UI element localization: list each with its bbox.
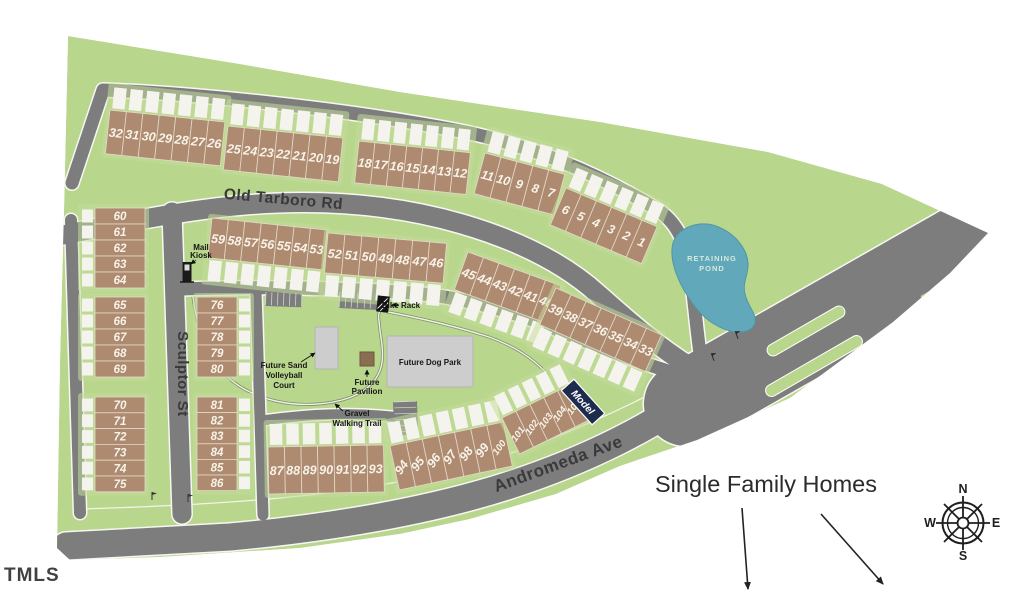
- pavilion[interactable]: [360, 352, 374, 366]
- driveway: [82, 226, 93, 239]
- driveway: [289, 269, 304, 291]
- lot-number: 61: [114, 227, 127, 239]
- volleyball-label-line1: Future Sand: [261, 361, 308, 370]
- driveway: [82, 210, 93, 223]
- lot-number: 75: [114, 479, 127, 491]
- lot-number: 27: [189, 134, 206, 150]
- lot-number: 93: [369, 462, 383, 476]
- volleyball-label-line2: Volleyball: [266, 371, 303, 380]
- driveway: [393, 122, 407, 144]
- driveway: [224, 262, 239, 284]
- lot-number: 82: [211, 416, 224, 428]
- lot-block-col-60-64: 6061626364: [78, 204, 149, 292]
- pavilion-label-line1: Future: [355, 378, 380, 387]
- lot-number: 49: [377, 251, 393, 266]
- lot-number: 66: [114, 316, 127, 328]
- driveway: [286, 423, 299, 444]
- lot-number: 89: [303, 463, 317, 477]
- volleyball-label-line3: Court: [273, 381, 295, 390]
- driveway: [240, 263, 255, 285]
- driveway: [409, 123, 423, 145]
- lot-number: 63: [114, 259, 127, 271]
- driveway: [257, 265, 272, 287]
- single-family-arrow-left: [742, 508, 748, 589]
- volleyball-court[interactable]: [315, 327, 338, 369]
- street-label-sculptor-st: Sculptor St: [174, 331, 191, 417]
- lot-number: 73: [114, 448, 127, 460]
- entry-monument: [921, 292, 937, 312]
- lot-number: 71: [114, 416, 127, 428]
- lot-number: 79: [211, 348, 224, 360]
- lot-number: 84: [211, 447, 224, 459]
- driveway: [82, 414, 93, 427]
- lot-number: 90: [319, 463, 333, 477]
- lot-number: 31: [125, 127, 140, 142]
- compass-north-label: N: [958, 482, 967, 496]
- driveway: [279, 109, 294, 131]
- driveway: [296, 110, 311, 132]
- mail-kiosk-label-line2: Kiosk: [190, 251, 212, 260]
- driveway: [194, 96, 209, 118]
- lot-number: 58: [227, 233, 242, 248]
- driveway: [239, 461, 250, 474]
- driveway: [82, 258, 93, 271]
- driveway: [82, 462, 93, 475]
- lot-number: 23: [258, 145, 274, 160]
- lot-number: 91: [336, 463, 350, 477]
- driveway: [377, 120, 391, 142]
- driveway: [82, 363, 93, 376]
- lot-number: 83: [211, 431, 224, 443]
- driveway: [129, 89, 144, 111]
- lot-number: 72: [114, 432, 127, 444]
- lot-number: 64: [114, 275, 127, 287]
- driveway: [230, 103, 245, 125]
- compass-east-label: E: [992, 516, 1000, 530]
- dog-park-label: Future Dog Park: [399, 358, 462, 367]
- lot-number: 80: [211, 364, 224, 376]
- lot-number: 28: [173, 132, 189, 147]
- driveway: [211, 98, 226, 120]
- pond-label-line2: POND: [699, 264, 725, 273]
- lot-number: 20: [307, 150, 323, 165]
- driveway: [341, 276, 356, 298]
- compass-hub: [958, 518, 969, 529]
- driveway: [178, 94, 193, 116]
- driveway: [239, 414, 250, 427]
- driveway: [239, 331, 250, 344]
- compass-rose: [936, 496, 990, 550]
- site-plan-map: 3231302928272625242322212019181716151413…: [0, 0, 1029, 600]
- lot-number: 12: [453, 166, 468, 181]
- lot-number: 53: [309, 242, 324, 257]
- lot-number: 51: [344, 248, 359, 263]
- lot-number: 21: [291, 148, 307, 163]
- lot-number: 26: [206, 136, 223, 152]
- driveway: [312, 112, 327, 134]
- driveway: [112, 87, 127, 109]
- driveway: [425, 125, 439, 147]
- lot-number: 56: [260, 237, 276, 252]
- road-junction: [680, 359, 718, 397]
- lot-number: 59: [210, 232, 225, 247]
- lot-number: 65: [114, 300, 127, 312]
- lot-number: 87: [270, 464, 285, 478]
- lot-number: 74: [114, 463, 127, 475]
- driveway: [239, 399, 250, 412]
- lot-block-row-32-26: 32313029282726: [101, 83, 232, 170]
- lot-number: 54: [292, 240, 307, 255]
- lot-number: 68: [114, 348, 127, 360]
- driveway: [325, 275, 340, 297]
- driveway: [207, 260, 222, 282]
- driveway: [306, 270, 321, 292]
- driveway: [239, 445, 250, 458]
- driveway: [82, 315, 93, 328]
- driveway: [82, 399, 93, 412]
- driveway: [329, 114, 344, 136]
- lot-number: 78: [211, 332, 224, 344]
- lot-number: 25: [225, 141, 242, 157]
- driveway: [82, 478, 93, 491]
- driveway: [319, 423, 332, 444]
- lot-number: 47: [411, 254, 428, 269]
- driveway: [82, 331, 93, 344]
- driveway: [358, 278, 373, 300]
- lot-block-row-18-12: 18171615141312: [350, 114, 477, 199]
- driveway: [82, 299, 93, 312]
- driveway: [239, 477, 250, 490]
- lot-number: 18: [357, 156, 372, 171]
- lot-number: 29: [156, 131, 172, 146]
- lot-number: 76: [211, 300, 224, 312]
- lot-number: 62: [114, 243, 127, 255]
- driveway: [145, 91, 160, 113]
- lot-block-col-65-69: 6566676869: [78, 293, 149, 381]
- driveway: [441, 127, 455, 149]
- lot-number: 32: [108, 126, 123, 141]
- driveway: [239, 347, 250, 360]
- driveway: [239, 430, 250, 443]
- bike-rack-label: Bike Rack: [382, 301, 421, 310]
- lot-block-col-81-86: 818283848586: [193, 393, 254, 495]
- lot-number: 70: [114, 400, 127, 412]
- driveway: [82, 274, 93, 287]
- driveway: [273, 267, 288, 289]
- lot-block-col-70-75: 707172737475: [78, 393, 149, 496]
- driveway: [82, 446, 93, 459]
- lot-number: 50: [361, 250, 376, 265]
- driveway: [161, 93, 176, 115]
- driveway: [247, 105, 262, 127]
- lot-number: 30: [141, 129, 156, 144]
- compass-west-label: W: [924, 516, 936, 530]
- lot-number: 67: [114, 332, 127, 344]
- single-family-arrow-right: [821, 514, 883, 584]
- lot-number: 14: [421, 162, 436, 177]
- lot-number: 16: [389, 159, 405, 174]
- driveway: [303, 423, 316, 444]
- lot-number: 13: [437, 164, 452, 179]
- lot-block-row-25-19: 25242322212019: [219, 99, 350, 186]
- lot-number: 22: [274, 147, 290, 162]
- lot-number: 24: [242, 143, 258, 158]
- compass-south-label: S: [959, 549, 967, 563]
- lot-number: 92: [352, 462, 366, 476]
- lot-number: 86: [211, 478, 224, 490]
- lot-number: 69: [114, 364, 127, 376]
- lot-number: 77: [211, 316, 224, 328]
- trail-label-line1: Gravel: [345, 409, 370, 418]
- lot-number: 85: [211, 462, 224, 474]
- driveway: [239, 299, 250, 312]
- driveway: [82, 347, 93, 360]
- lot-number: 19: [325, 152, 340, 167]
- driveway: [426, 284, 441, 306]
- single-family-homes-label: Single Family Homes: [655, 471, 877, 497]
- watermark-tmls: TMLS: [4, 565, 60, 586]
- driveway: [263, 107, 278, 129]
- road-alley-vertical: [256, 291, 263, 515]
- lot-number: 46: [428, 255, 445, 270]
- lot-number: 15: [405, 161, 421, 176]
- lot-number: 55: [276, 238, 292, 253]
- lot-number: 48: [394, 252, 410, 267]
- driveway: [392, 281, 407, 303]
- lot-block-col-76-80: 7677787980: [193, 293, 254, 381]
- driveway: [457, 128, 471, 150]
- driveway: [82, 242, 93, 255]
- driveway: [270, 424, 283, 445]
- driveway: [82, 430, 93, 443]
- pond-label-line1: RETAINING: [687, 254, 737, 263]
- site-plan-page: 3231302928272625242322212019181716151413…: [0, 0, 1029, 600]
- driveway: [239, 363, 250, 376]
- trail-label-line2: Walking Trail: [332, 419, 381, 428]
- lot-number: 52: [327, 247, 342, 262]
- lot-number: 81: [211, 400, 224, 412]
- driveway: [361, 118, 375, 140]
- lot-number: 88: [286, 463, 300, 477]
- lot-block-row-59-53: 59585756555453: [201, 214, 331, 298]
- lot-number: 17: [373, 157, 389, 172]
- lot-block-row-87-93: 87888990919293: [264, 418, 389, 498]
- driveway: [239, 315, 250, 328]
- pavilion-label-line2: Pavilion: [352, 387, 383, 396]
- lot-number: 60: [114, 211, 127, 223]
- lot-number: 57: [243, 235, 259, 250]
- compass-spokes: [936, 496, 990, 550]
